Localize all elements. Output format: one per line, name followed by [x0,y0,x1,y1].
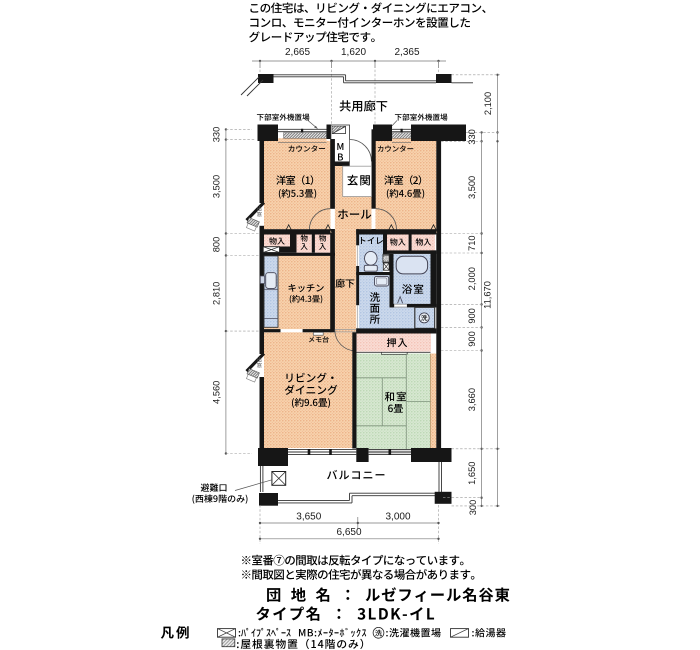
svg-text:11,670: 11,670 [483,281,493,309]
svg-text:330: 330 [467,129,477,145]
svg-text:6,650: 6,650 [336,527,361,538]
svg-text:3,650: 3,650 [296,512,321,523]
svg-text:900: 900 [467,308,477,324]
svg-text:330: 330 [212,127,222,143]
svg-text:2,100: 2,100 [483,92,493,115]
svg-text:2,665: 2,665 [285,47,310,58]
svg-text:800: 800 [212,237,222,253]
svg-text:2,000: 2,000 [467,267,477,290]
svg-text:3,500: 3,500 [212,175,222,198]
svg-text:710: 710 [467,235,477,251]
svg-text:3,500: 3,500 [467,176,477,199]
svg-text:1,620: 1,620 [341,47,366,58]
svg-text:2,810: 2,810 [212,282,222,305]
svg-text:1,650: 1,650 [467,462,477,485]
svg-text:900: 900 [467,331,477,347]
svg-text:3,000: 3,000 [385,512,410,523]
svg-text:300: 300 [468,500,478,516]
svg-text:3,660: 3,660 [467,388,477,411]
svg-text:4,560: 4,560 [212,381,222,404]
svg-text:2,365: 2,365 [394,47,419,58]
